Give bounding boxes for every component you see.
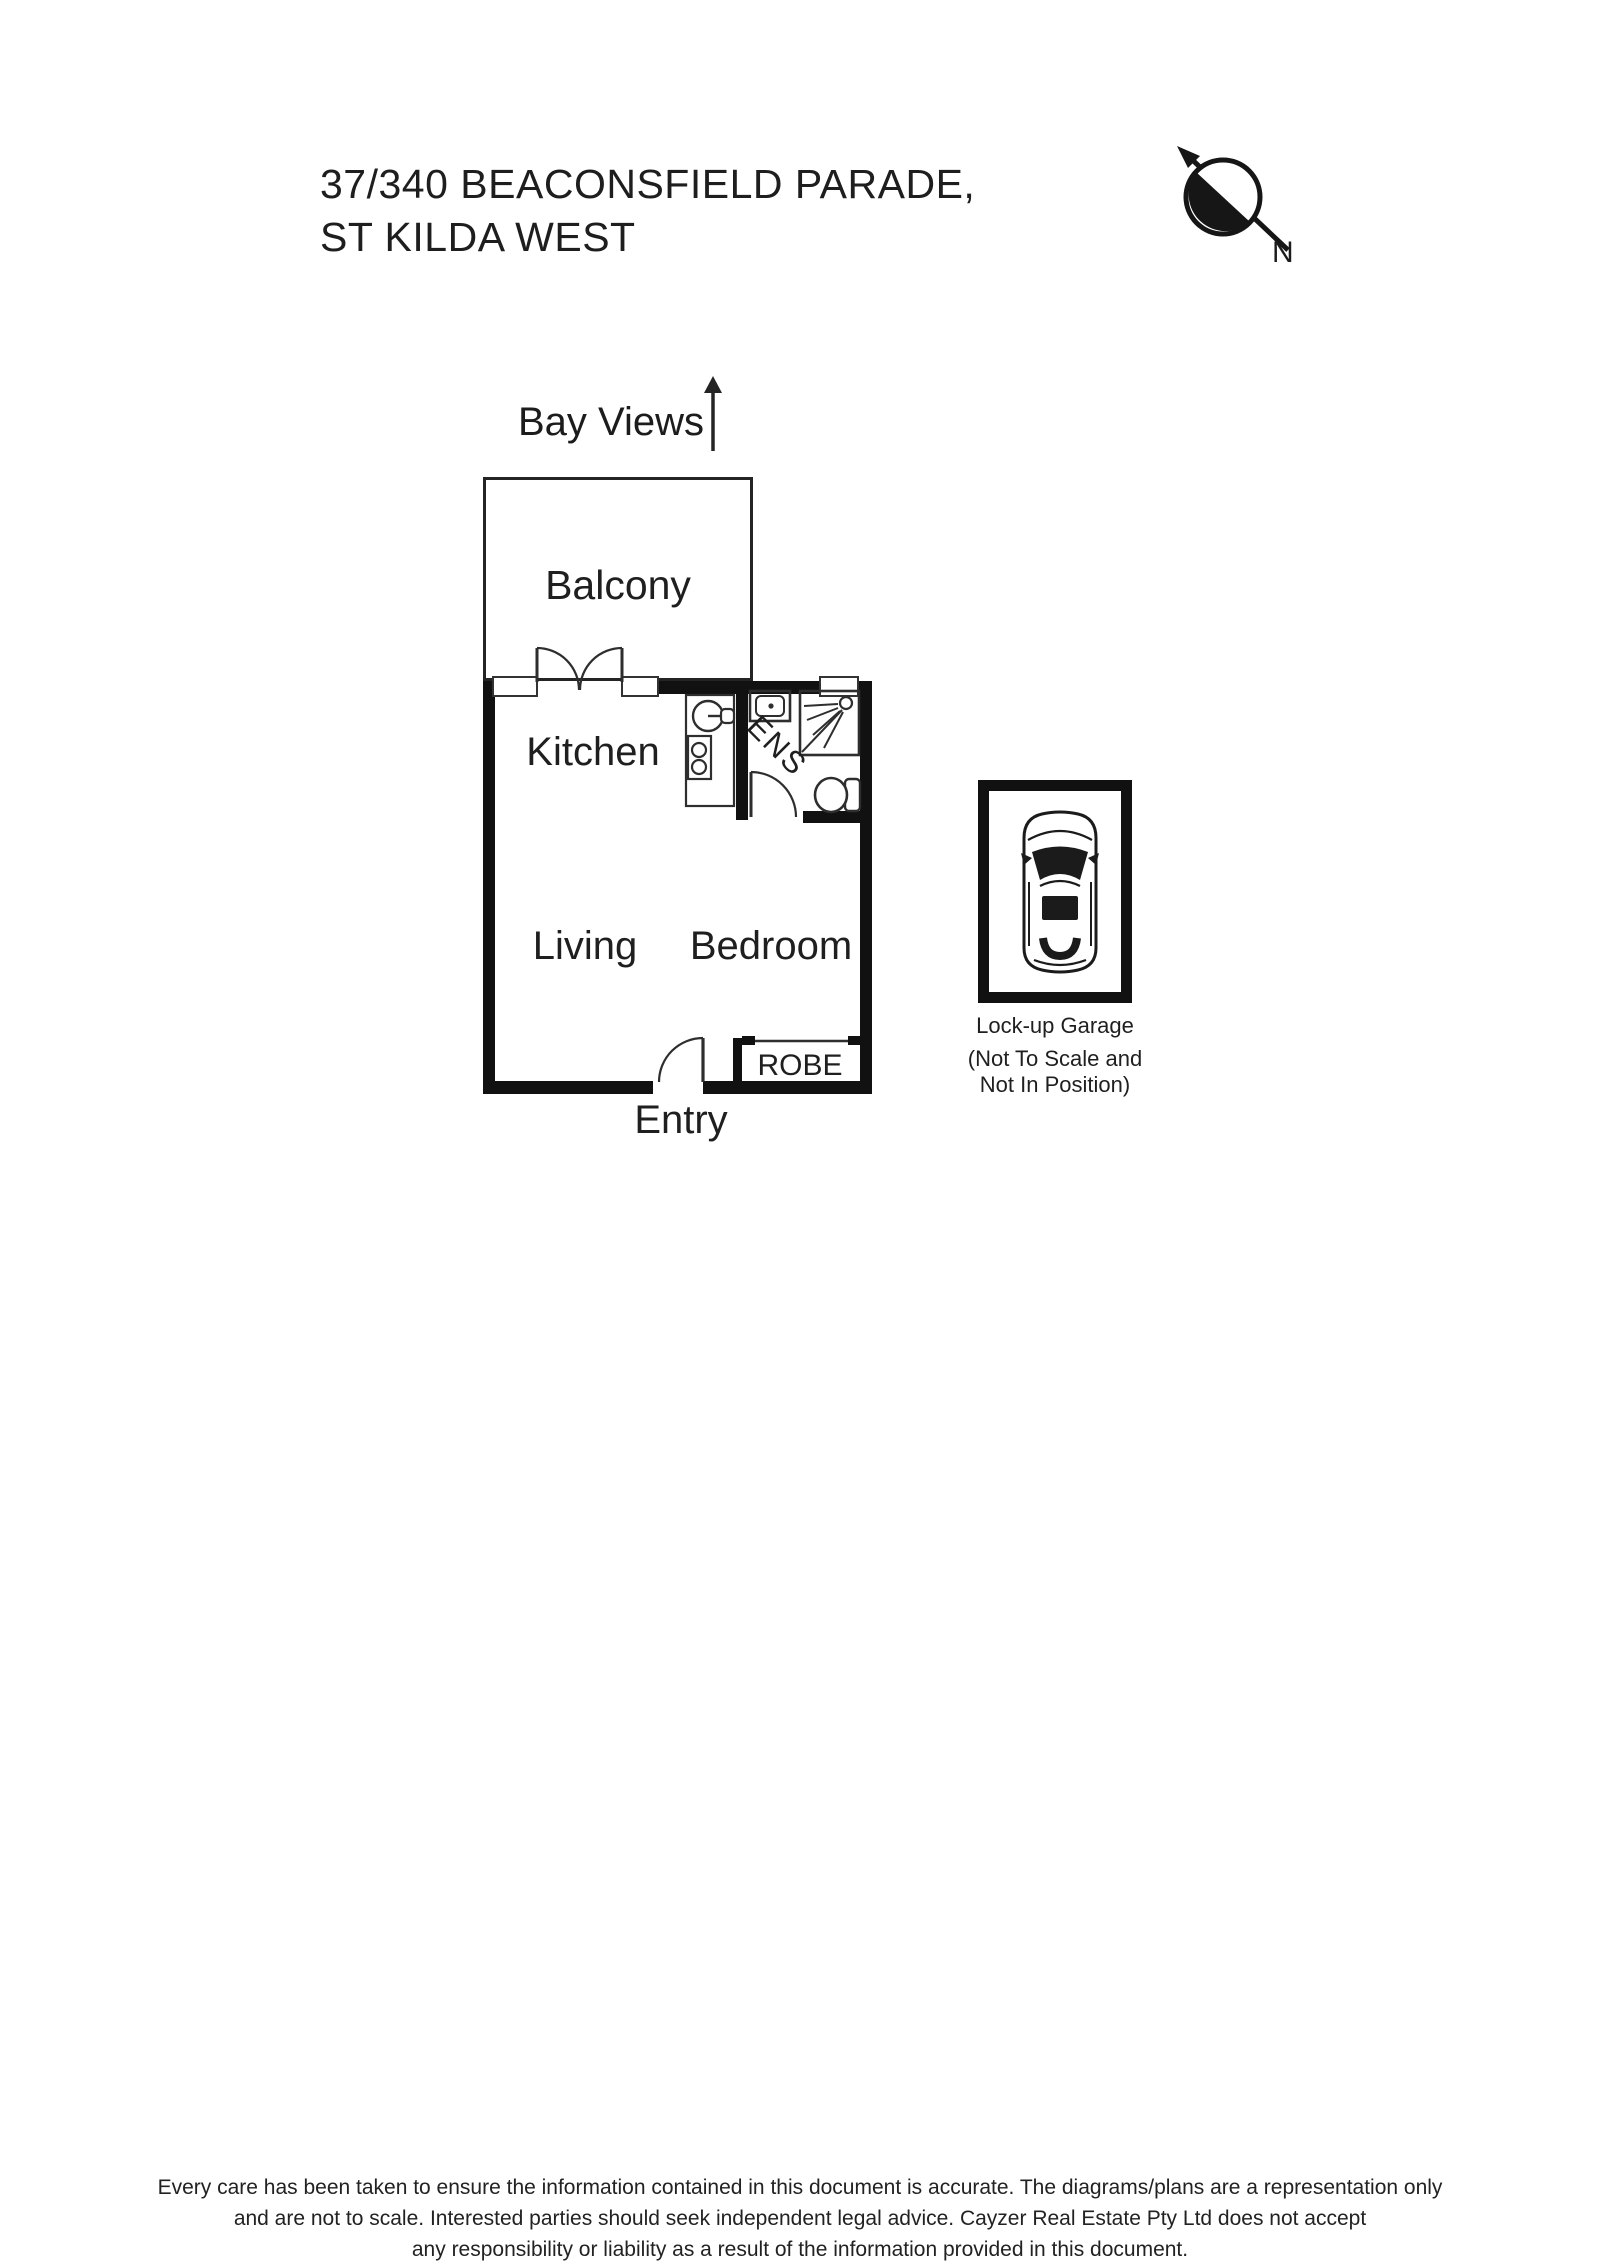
room-label-living: Living	[500, 924, 670, 969]
car-top-view-icon	[1021, 812, 1099, 972]
disclaimer-line-2: and are not to scale. Interested parties…	[0, 2203, 1600, 2234]
page-title: 37/340 BEACONSFIELD PARADE, ST KILDA WES…	[320, 158, 975, 264]
floorplan-document: 37/340 BEACONSFIELD PARADE, ST KILDA WES…	[0, 0, 1600, 2263]
title-line-2: ST KILDA WEST	[320, 211, 975, 264]
garage-note-line-2: Not In Position)	[945, 1072, 1165, 1098]
balcony-door-icon	[537, 648, 622, 690]
garage-note-line-1: (Not To Scale and	[945, 1046, 1165, 1072]
up-arrow-icon	[704, 376, 722, 451]
room-label-balcony: Balcony	[483, 562, 753, 609]
floorplan-drawing	[0, 0, 1600, 2263]
entry-door-icon	[659, 1038, 703, 1082]
compass-n-label: N	[1272, 236, 1294, 270]
bay-views-label: Bay Views	[518, 400, 704, 445]
shower-icon	[800, 691, 859, 755]
room-label-kitchen: Kitchen	[513, 730, 673, 775]
cooktop-icon	[688, 736, 711, 779]
north-arrow-icon	[1177, 146, 1288, 250]
garage-label: Lock-up Garage	[955, 1013, 1155, 1039]
title-line-1: 37/340 BEACONSFIELD PARADE,	[320, 158, 975, 211]
room-label-bedroom: Bedroom	[681, 924, 861, 969]
disclaimer-line-3: any responsibility or liability as a res…	[0, 2234, 1600, 2263]
garage-note: (Not To Scale and Not In Position)	[945, 1046, 1165, 1098]
room-label-entry: Entry	[611, 1098, 751, 1143]
robe-door-icon	[742, 1036, 861, 1045]
disclaimer-text: Every care has been taken to ensure the …	[0, 2172, 1600, 2263]
disclaimer-line-1: Every care has been taken to ensure the …	[0, 2172, 1600, 2203]
room-label-robe: ROBE	[750, 1049, 850, 1083]
